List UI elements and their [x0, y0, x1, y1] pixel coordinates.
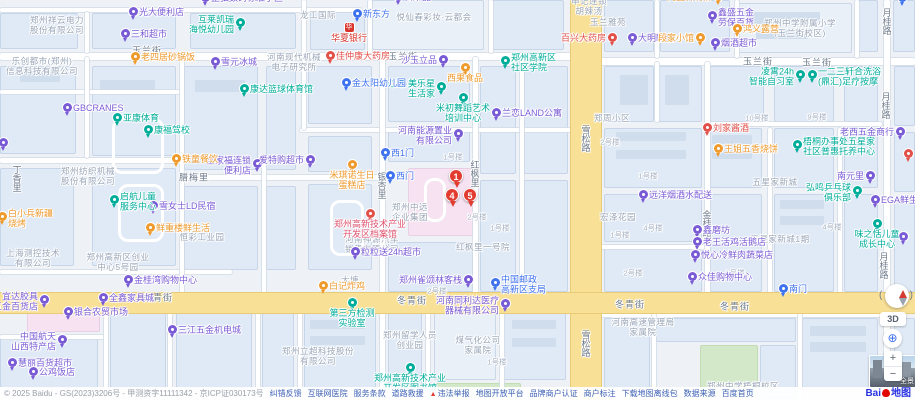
poi-label[interactable]: 南门 [789, 285, 807, 295]
poi-pin-icon[interactable] [326, 51, 335, 60]
footer-link[interactable]: 地图开放平台 [476, 389, 524, 398]
poi-pin-icon[interactable] [58, 335, 67, 344]
poi-pin-icon[interactable] [63, 103, 72, 112]
area-name-label: 郑州纺织机械股份有限公司 [61, 166, 115, 186]
logo-map-text: 地图 [891, 388, 911, 399]
poi-label[interactable]: 郑州高新区社区学院 [511, 53, 556, 72]
compass-disc[interactable] [885, 284, 909, 308]
building-footprint [810, 342, 866, 352]
footer-link[interactable]: 违法举报 [438, 389, 470, 398]
poi-pin-icon[interactable] [240, 84, 249, 93]
poi-label[interactable]: 公鸡饭店 [39, 368, 75, 378]
poi-pin-icon[interactable] [459, 93, 468, 102]
poi-label[interactable]: 众佳购物中心 [698, 273, 752, 283]
poi-pin-icon[interactable] [796, 70, 805, 79]
poi-pin-icon[interactable] [866, 171, 875, 180]
poi-pin-icon[interactable] [64, 307, 73, 316]
poi-label[interactable]: 正弘数码标准小区 [211, 0, 283, 4]
street-name-label: 冬青街 [615, 298, 645, 311]
poi-label[interactable]: 老王活鸡活鹅店 [703, 238, 766, 248]
poi-label[interactable]: 西1门 [391, 149, 414, 159]
zoom-in-button[interactable]: + [884, 351, 902, 367]
panorama-building-shape [873, 360, 882, 378]
footer-bar: © 2025 Baidu - GS(2023)3206号 - 甲测资字11111… [0, 387, 915, 400]
compass-needle-south-icon [899, 298, 907, 306]
poi-pin-icon[interactable] [639, 190, 648, 199]
building-footprint [665, 75, 689, 105]
area-name-label: 河南高速管理局家属院 [611, 317, 674, 337]
poi-label[interactable]: 爱特购超市 [259, 156, 304, 166]
poi-pin-icon[interactable] [99, 293, 108, 302]
poi-label[interactable]: 光大便利店 [139, 8, 184, 18]
poi-label[interactable]: 华夏银行 [331, 34, 367, 44]
poi-pin-icon[interactable] [201, 0, 210, 2]
building-footprint [620, 75, 648, 105]
poi-pin-icon[interactable] [131, 52, 140, 61]
poi-pin-icon[interactable] [319, 281, 328, 290]
poi-pin-icon[interactable] [129, 7, 138, 16]
logo-bai-text: Bai [865, 388, 881, 399]
road [368, 0, 372, 53]
poi-label[interactable]: 三江五金机电城 [178, 326, 241, 336]
city-block [308, 66, 372, 124]
street-name-label: 月桂路 [880, 92, 893, 119]
poi-pin-icon[interactable] [896, 127, 905, 136]
poi-label[interactable]: 三和超市 [131, 30, 167, 40]
city-block [894, 132, 915, 192]
poi-pin-icon[interactable] [342, 78, 351, 87]
building-footprint [616, 150, 686, 159]
footer-link[interactable]: 数据来源 [684, 389, 716, 398]
area-name-label: 龙工国际 [300, 10, 336, 20]
poi-pin-icon[interactable] [366, 209, 375, 218]
building-number-label: 1号楼 [443, 152, 462, 163]
poi-label[interactable]: 鸿义露营 [743, 25, 779, 35]
poi-pin-icon[interactable] [110, 195, 119, 204]
building-number-label: 1号楼 [490, 223, 509, 234]
poi-pin-icon[interactable] [501, 56, 510, 65]
footer-link[interactable]: 百度首页 [722, 389, 754, 398]
poi-pin-icon[interactable] [406, 363, 415, 372]
area-name-label: 红枫里一号院 [456, 242, 510, 252]
poi-label[interactable]: 王姐五香烧饼 [724, 145, 778, 155]
street-name-label: 腊梅里 [179, 171, 209, 184]
poi-pin-icon[interactable] [853, 186, 862, 195]
poi-pin-icon[interactable] [779, 284, 788, 293]
building-number-label: 1号楼 [610, 230, 629, 241]
poi-label[interactable]: 金太阳幼儿园 [352, 79, 406, 89]
area-name-label: 乐创都市(郑州)信息科技有限公司 [6, 56, 78, 76]
building-number-label: 2号楼 [467, 212, 486, 223]
city-block [604, 248, 702, 292]
poi-pin-icon[interactable] [381, 148, 390, 157]
baidu-maps-logo: Bai地图 [865, 388, 911, 399]
area-name-label: 郑州留学人员创业园 [383, 330, 437, 350]
footer-link[interactable]: 服务条款 [354, 389, 386, 398]
building-footprint [195, 80, 245, 92]
poi-label[interactable]: 远洋烟酒水配送 [649, 191, 712, 201]
rotate-right-icon[interactable]: ) [910, 290, 913, 301]
poi-label[interactable]: 弘鸣乒乓球俱乐部 [806, 183, 851, 202]
alert-triangle-icon: ▲ [430, 391, 437, 398]
area-name-label: 郑州高新区创业中心5号园 [86, 252, 149, 272]
poi-label[interactable]: 段家小馆 [658, 34, 694, 44]
poi-label[interactable]: 全鑫家具城 [109, 294, 154, 304]
area-name-label: 河南现代机械电子研究所 [267, 52, 321, 72]
poi-label[interactable]: 启航儿童服务中心 [120, 192, 156, 211]
poi-label[interactable]: 鲜重楼鲜生活 [156, 224, 210, 234]
poi-pin-icon[interactable] [348, 298, 357, 307]
footer-link[interactable]: 道路救援 [392, 389, 424, 398]
poi-label[interactable]: 银合农贸市场 [74, 308, 128, 318]
zoom-control: + − [884, 351, 902, 381]
footer-link[interactable]: 商户标注 [584, 389, 616, 398]
poi-pin-icon[interactable] [871, 195, 880, 204]
poi-pin-icon[interactable] [693, 225, 702, 234]
panorama-label: 全景 [900, 376, 914, 386]
road [262, 155, 266, 302]
poi-label[interactable]: 新东方 [363, 10, 390, 20]
street-name-label: 雪松路 [580, 125, 593, 152]
poi-label[interactable]: 沙玉立品 [401, 56, 437, 65]
city-block [372, 0, 484, 50]
building-number-label: 2号楼 [600, 137, 619, 148]
poi-label[interactable]: 老四居砂锅饭 [141, 53, 195, 63]
building-number-label: 1号楼 [487, 357, 506, 368]
footer-link[interactable]: 纠错反馈 [270, 389, 302, 398]
poi-label[interactable]: 味之恬儿童成长中心 [854, 230, 899, 249]
poi-label[interactable]: 粒粒送24h超市 [361, 248, 421, 258]
poi-pin-icon[interactable] [306, 155, 315, 164]
street-name-label: 冬青街 [720, 300, 750, 313]
poi-label[interactable]: 悦心冷鲜肉蔬菜店 [701, 251, 773, 261]
poi-pin-icon[interactable] [501, 299, 510, 308]
city-block [524, 66, 568, 174]
city-block [110, 312, 166, 388]
poi-label[interactable]: 金桂湾购物中心 [134, 276, 197, 286]
street-name-label: 丁香里 [11, 165, 24, 192]
road [168, 302, 172, 400]
poi-label[interactable]: 宜达胶具五金百货店 [0, 292, 38, 311]
poi-label[interactable]: 第三方检测实验室 [329, 309, 374, 328]
poi-pin-icon[interactable] [693, 237, 702, 246]
poi-pin-icon[interactable] [146, 223, 155, 232]
street-name-label: 月桂路 [878, 252, 891, 279]
poi-pin-icon[interactable] [40, 295, 49, 304]
poi-pin-icon[interactable] [628, 33, 637, 42]
area-name-label: 玉兰雅苑 [590, 17, 626, 27]
road [85, 12, 89, 53]
poi-label[interactable]: 白小兵新疆烧烤 [8, 209, 53, 228]
area-name-label: 悦仙春彩妆·云都会 [396, 12, 471, 22]
poi-label[interactable]: 烟酒超市 [721, 39, 757, 49]
poi-label[interactable]: 雪元冰城 [221, 58, 257, 67]
poi-pin-icon[interactable] [808, 70, 817, 79]
building-footprint [616, 132, 686, 141]
search-result-marker-4[interactable]: 4 [445, 188, 459, 202]
area-name-label: 上海测控技术有限公司 [6, 248, 60, 268]
baidu-paw-icon [882, 389, 890, 397]
poi-pin-icon[interactable] [236, 18, 245, 27]
road [256, 302, 260, 400]
poi-label[interactable]: 凌霄24h智能自习室 [749, 67, 794, 86]
city-block [308, 136, 372, 172]
area-name-label: 郑州立超科技股份有限公司 [282, 346, 354, 366]
panorama-building-shape [901, 362, 911, 377]
poi-pin-icon[interactable] [437, 82, 446, 91]
city-block [893, 0, 915, 52]
poi-pin-icon[interactable] [8, 358, 17, 367]
poi-pin-icon[interactable] [121, 29, 130, 38]
area-name-label: 郑周小区 [594, 113, 630, 123]
poi-label[interactable]: 米初舞蹈艺术培训中心 [436, 104, 490, 123]
building-number-label: 4号楼 [643, 223, 662, 234]
poi-label[interactable]: 铁童餐饮 [182, 155, 218, 165]
poi-label[interactable]: 佳仲康大药房 [336, 52, 390, 62]
map-canvas[interactable]: 玉兰街玉兰街玉兰街玉兰街冬青街冬青街冬青街冬青街腊梅里雪松路雪松路月桂路月桂路月… [0, 0, 915, 400]
poi-pin-icon[interactable] [696, 33, 705, 42]
road [655, 0, 659, 58]
zoom-out-button[interactable]: − [884, 367, 902, 381]
poi-label[interactable]: 康福驾校 [154, 126, 190, 136]
city-block [176, 312, 252, 388]
road [0, 90, 180, 94]
poi-pin-icon[interactable] [492, 108, 501, 117]
poi-label[interactable]: 亚康体育 [123, 114, 159, 124]
poi-label[interactable]: 郑州高新技术产业开发区档案馆 [334, 220, 406, 239]
locate-me-button[interactable]: ⊕ [883, 329, 902, 348]
poi-label[interactable]: 兰恋LAND公寓 [502, 109, 562, 119]
poi-pin-icon[interactable] [168, 325, 177, 334]
3d-view-button[interactable]: 3D [880, 312, 906, 326]
poi-label[interactable]: 同玉轩焖饼 [667, 0, 712, 3]
poi-pin-icon[interactable] [386, 171, 395, 180]
poi-pin-icon[interactable] [0, 212, 7, 221]
city-block [656, 318, 796, 342]
poi-label[interactable]: EGA鲜生活超市 [881, 196, 915, 206]
poi-pin-icon[interactable] [29, 367, 38, 376]
poi-pin-icon[interactable] [688, 272, 697, 281]
search-result-marker-5[interactable]: 5 [463, 188, 477, 202]
copyright-text: © 2025 Baidu - GS(2023)3206号 - 甲测资字11111… [4, 389, 264, 398]
bank-icon[interactable]: 华 [345, 23, 354, 32]
compass-needle-north-icon [899, 290, 907, 298]
poi-pin-icon[interactable] [703, 123, 712, 132]
poi-label[interactable]: 河南同利达医疗器械有限公司 [436, 296, 499, 315]
city-block [492, 0, 564, 50]
poi-pin-icon[interactable] [464, 275, 473, 284]
poi-pin-icon[interactable] [454, 129, 463, 138]
poi-pin-icon[interactable] [439, 55, 448, 64]
poi-pin-icon[interactable] [899, 232, 908, 241]
poi-pin-icon[interactable] [873, 219, 882, 228]
building-footprint [780, 216, 824, 225]
road [489, 0, 493, 53]
poi-pin-icon[interactable] [691, 250, 700, 259]
poi-pin-icon[interactable] [608, 33, 617, 42]
city-block [266, 186, 296, 270]
poi-label[interactable]: 刘家酱酒 [713, 124, 749, 134]
poi-label[interactable]: 梧桐办事处五星家社区普惠托养中心 [803, 137, 875, 156]
building-number-label: 2号楼 [623, 268, 642, 279]
city-block [894, 66, 915, 126]
footer-link[interactable]: 下载地图离线包 [622, 389, 678, 398]
area-name-label: 五星家新城 [752, 177, 797, 187]
poi-pin-icon[interactable] [708, 11, 717, 20]
poi-pin-icon[interactable] [124, 275, 133, 284]
poi-pin-icon[interactable] [113, 113, 122, 122]
road [600, 245, 705, 249]
poi-pin-icon[interactable] [353, 9, 362, 18]
poi-label[interactable]: 互莱凯瑞海悦幼儿园 [189, 15, 234, 34]
road [302, 0, 306, 57]
road [500, 302, 504, 400]
road [705, 62, 710, 302]
poi-label[interactable]: 白记炸鸡 [329, 282, 365, 292]
poi-pin-icon[interactable] [733, 24, 742, 33]
building-footprint [512, 320, 556, 329]
poi-label[interactable]: 雪女士LD民宿 [159, 202, 216, 212]
poi-pin-icon[interactable] [0, 138, 8, 147]
building-number-label: 10号楼 [745, 113, 768, 124]
poi-pin-icon[interactable] [711, 38, 720, 47]
area-name-label: 郑州祥云电力股份有限公司 [30, 15, 84, 35]
poi-pin-icon[interactable] [351, 247, 360, 256]
area-name-label: 煤气化公司家属院 [455, 335, 500, 355]
poi-label[interactable]: 中国邮政高新区支局 [501, 275, 546, 294]
poi-pin-icon[interactable] [491, 278, 500, 287]
building-number-label: 9号楼 [807, 112, 826, 123]
building-number-label: 4号楼 [822, 222, 841, 233]
building-footprint [810, 326, 866, 336]
road [855, 0, 859, 58]
area-name-label: 申记连锁胡辣汤 [571, 0, 607, 16]
street-name-label: 雪松路 [580, 330, 593, 357]
poi-label[interactable]: 西果食品 [447, 74, 483, 84]
footer-link[interactable]: 互联网医院 [308, 389, 348, 398]
poi-label[interactable]: 南元里 [837, 172, 864, 182]
poi-label[interactable]: 云来品 [404, 0, 431, 3]
poi-pin-icon[interactable] [904, 149, 913, 158]
compass-control[interactable]: ( ) [881, 282, 911, 312]
building-footprint [512, 338, 556, 347]
poi-pin-icon[interactable] [348, 160, 357, 169]
street-name-label: 月桂路 [881, 8, 894, 35]
poi-label[interactable]: 河南能源置业有限公司 [398, 126, 452, 145]
poi-label[interactable]: 郑州雀颂林客栈 [399, 276, 462, 286]
poi-pin-icon[interactable] [211, 57, 220, 66]
road [655, 62, 659, 122]
building-footprint [712, 135, 752, 144]
rotate-left-icon[interactable]: ( [879, 290, 882, 301]
street-name-label: 冬青街 [397, 294, 427, 307]
poi-label[interactable]: 西门 [396, 172, 414, 182]
city-block [858, 0, 878, 52]
poi-pin-icon[interactable] [793, 140, 802, 149]
building-number-label: 1号楼 [638, 171, 657, 182]
street-name-label: 红枫里 [469, 160, 482, 187]
footer-link[interactable]: 品牌商户认证 [530, 389, 578, 398]
poi-pin-icon[interactable] [714, 144, 723, 153]
poi-pin-icon[interactable] [172, 154, 181, 163]
poi-label[interactable]: 中国航天山西特产店 [11, 332, 56, 351]
road [520, 57, 524, 302]
area-name-label: 宏泽花园 [600, 212, 636, 222]
poi-label[interactable]: 康达篮球体育馆 [250, 85, 313, 95]
poi-pin-icon[interactable] [144, 125, 153, 134]
poi-label[interactable]: 百兴大药房 [561, 34, 606, 44]
poi-pin-icon[interactable] [461, 63, 470, 72]
search-result-marker-1[interactable]: 1 [449, 169, 463, 183]
building-footprint [310, 336, 365, 345]
poi-label[interactable]: 鑫磨坊 [703, 226, 730, 236]
poi-label[interactable]: 米琪诺生日蛋糕店 [329, 171, 374, 190]
poi-label[interactable]: 一二三轩合洗浴(鼎汇)足疗按摩 [818, 67, 881, 86]
